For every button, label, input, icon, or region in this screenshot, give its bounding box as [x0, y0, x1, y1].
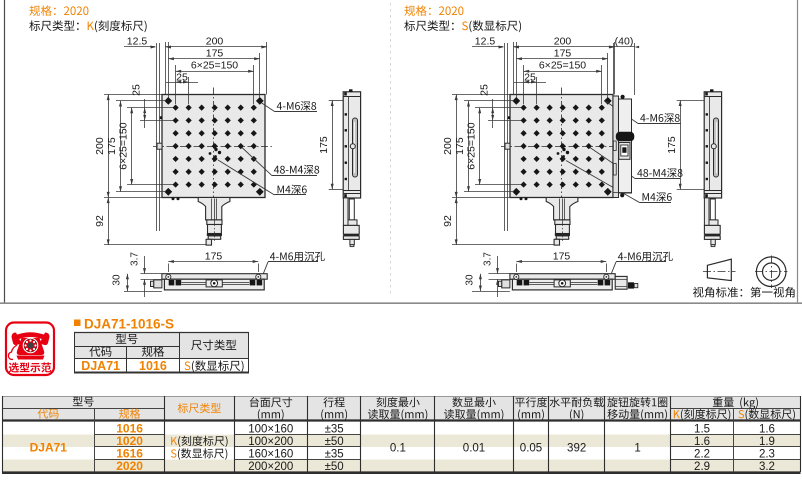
svg-text:2020: 2020: [116, 459, 143, 473]
svg-text:2.9: 2.9: [694, 461, 710, 473]
svg-text:6×25=150: 6×25=150: [539, 60, 586, 72]
svg-text:6×25=150: 6×25=150: [118, 122, 130, 169]
svg-text:25: 25: [524, 72, 536, 84]
svg-text:25: 25: [479, 84, 491, 96]
svg-text:175: 175: [454, 137, 466, 155]
svg-text:±35: ±35: [325, 424, 344, 436]
svg-text:100×200: 100×200: [248, 436, 293, 448]
svg-text:100×160: 100×160: [248, 424, 293, 436]
svg-text:6×25=150: 6×25=150: [466, 122, 478, 169]
svg-text:3.2: 3.2: [759, 461, 775, 473]
svg-text:30: 30: [465, 274, 476, 286]
svg-text:0.01: 0.01: [463, 442, 485, 454]
svg-text:200: 200: [442, 137, 454, 155]
svg-text:1016: 1016: [139, 359, 167, 373]
svg-text:175: 175: [106, 137, 118, 155]
svg-text:175: 175: [554, 47, 572, 59]
svg-text:±35: ±35: [325, 449, 344, 461]
svg-text:392: 392: [567, 442, 586, 454]
svg-text:175: 175: [666, 136, 678, 154]
svg-text:3.7: 3.7: [130, 252, 141, 266]
svg-text:6×25=150: 6×25=150: [191, 60, 238, 72]
svg-text:200: 200: [94, 137, 106, 155]
svg-text:25: 25: [176, 72, 188, 84]
svg-text:175: 175: [553, 251, 571, 263]
svg-text:92: 92: [442, 215, 454, 227]
svg-text:0.1: 0.1: [390, 442, 406, 454]
svg-text:12.5: 12.5: [127, 36, 148, 48]
svg-text:3.7: 3.7: [483, 252, 494, 266]
svg-text:200×200: 200×200: [248, 461, 293, 473]
svg-text:1.6: 1.6: [694, 436, 710, 448]
svg-text:1: 1: [634, 442, 640, 454]
svg-text:DJA71-1016-S: DJA71-1016-S: [84, 317, 174, 332]
svg-text:160×160: 160×160: [248, 449, 293, 461]
svg-text:1.6: 1.6: [759, 424, 775, 436]
svg-text:±50: ±50: [325, 461, 344, 473]
svg-text:DJA71: DJA71: [81, 359, 120, 373]
svg-text:30: 30: [112, 274, 123, 286]
svg-text:(40): (40): [615, 36, 634, 48]
svg-text:175: 175: [318, 136, 330, 154]
svg-text:2.2: 2.2: [694, 449, 710, 461]
svg-text:12.5: 12.5: [475, 36, 496, 48]
svg-text:92: 92: [94, 215, 106, 227]
svg-text:±50: ±50: [325, 436, 344, 448]
svg-text:25: 25: [131, 84, 143, 96]
svg-text:0.05: 0.05: [520, 442, 542, 454]
svg-text:200: 200: [206, 36, 224, 48]
svg-text:2.3: 2.3: [759, 449, 775, 461]
svg-text:175: 175: [205, 251, 223, 263]
svg-text:200: 200: [554, 36, 572, 48]
svg-text:1.9: 1.9: [759, 436, 775, 448]
svg-text:1.5: 1.5: [694, 424, 710, 436]
svg-text:DJA71: DJA71: [30, 440, 68, 454]
svg-text:175: 175: [206, 47, 224, 59]
